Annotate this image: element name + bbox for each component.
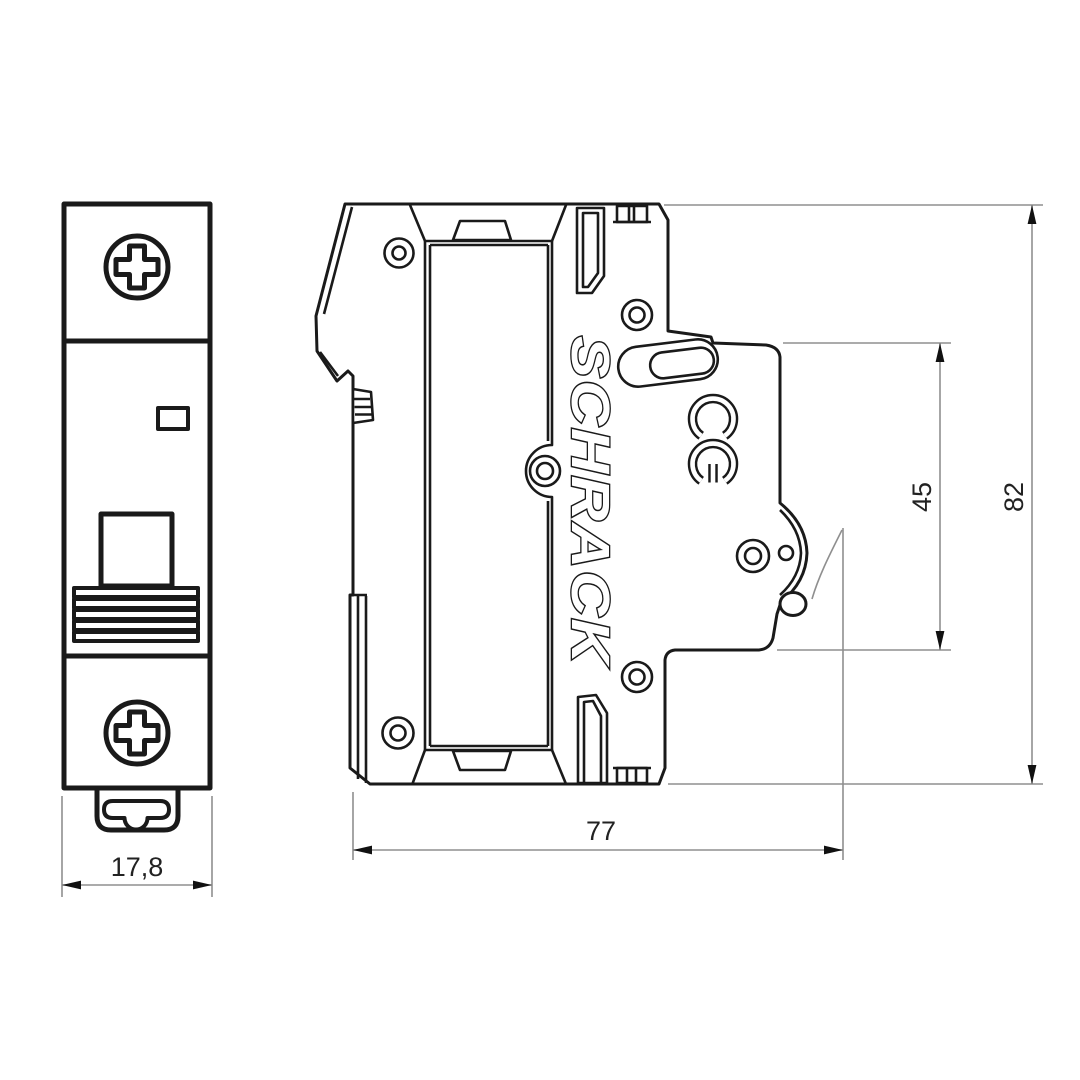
dimension-label-front-section-height: 45: [907, 482, 937, 512]
toggle-grip-ribs: [74, 588, 198, 641]
dimension-label-depth: 77: [586, 816, 616, 846]
front-view: [62, 204, 212, 830]
din-clip-slot: [104, 801, 169, 830]
toggle-swing-arc: [812, 530, 842, 599]
technical-drawing-canvas: SCHRACK CE 17,8 77 45 82: [0, 0, 1080, 1080]
side-view: SCHRACK CE: [316, 204, 807, 785]
dimension-label-overall-height: 82: [999, 482, 1029, 512]
dimension-label-front-width: 17,8: [111, 852, 164, 882]
toggle-handle-front: [101, 514, 172, 586]
panel-pocket-top: [453, 221, 511, 240]
terminal-screw-top-icon: [106, 236, 168, 298]
toggle-knob: [780, 593, 806, 616]
drawing-svg: SCHRACK CE 17,8 77 45 82: [0, 0, 1080, 1080]
terminal-screw-bottom-icon: [106, 702, 168, 764]
panel-pocket-bottom: [453, 751, 511, 770]
brand-text: SCHRACK: [560, 336, 620, 668]
